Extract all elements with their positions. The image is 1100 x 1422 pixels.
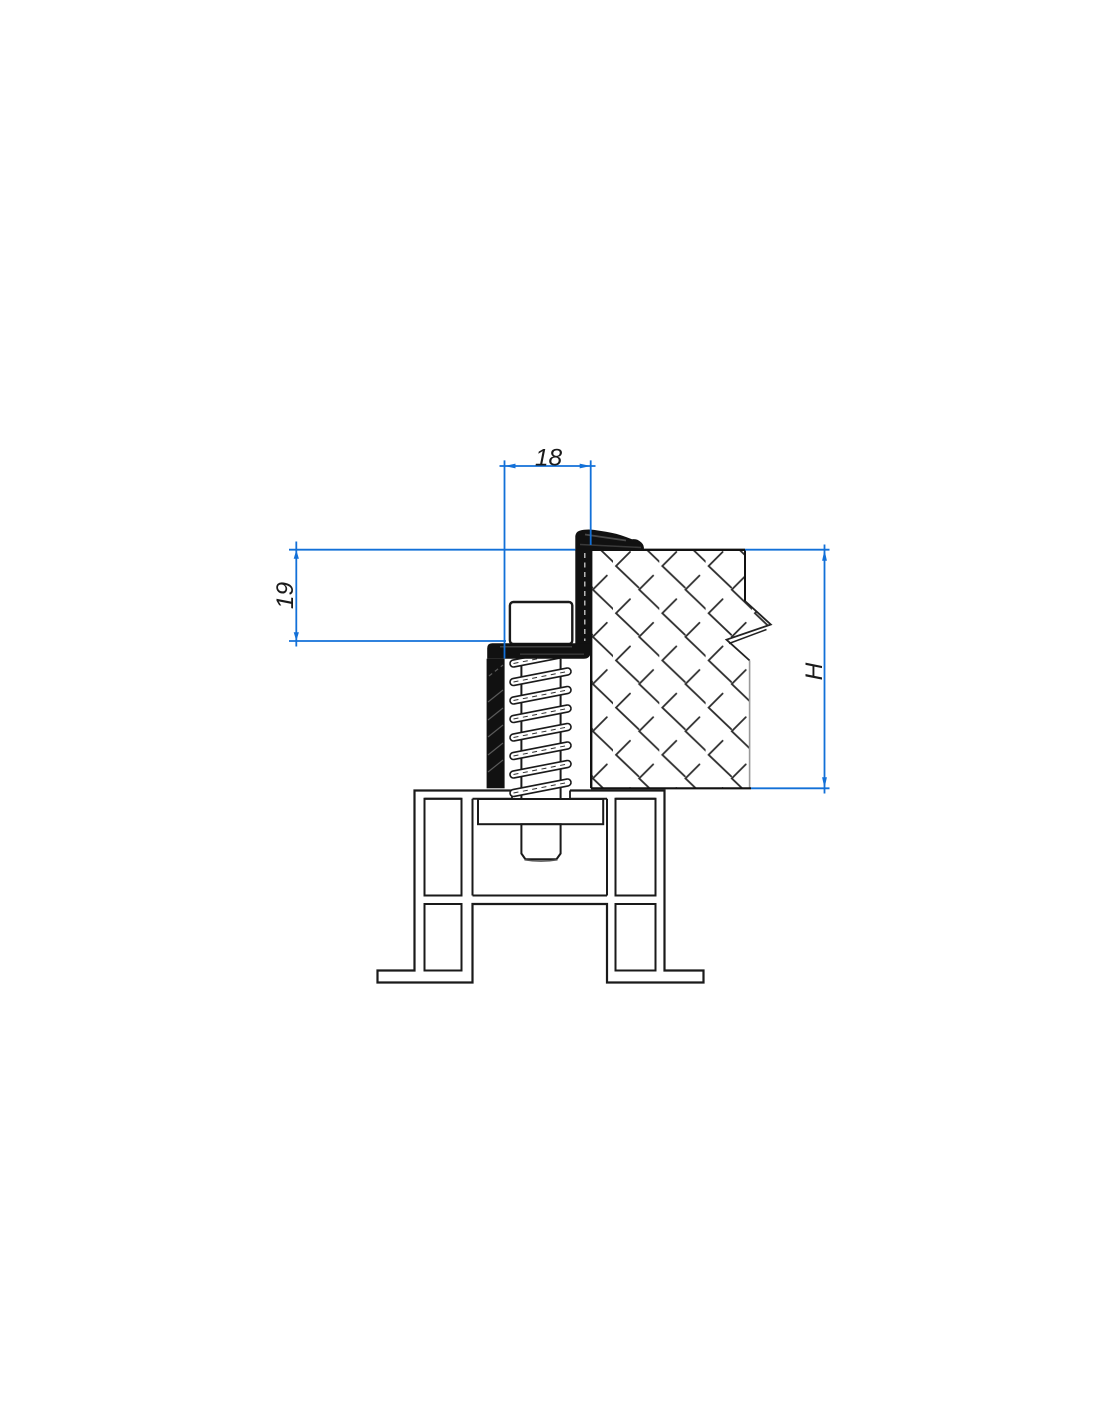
svg-text:18: 18: [535, 445, 563, 472]
svg-text:H: H: [801, 662, 828, 680]
svg-text:19: 19: [272, 582, 299, 610]
